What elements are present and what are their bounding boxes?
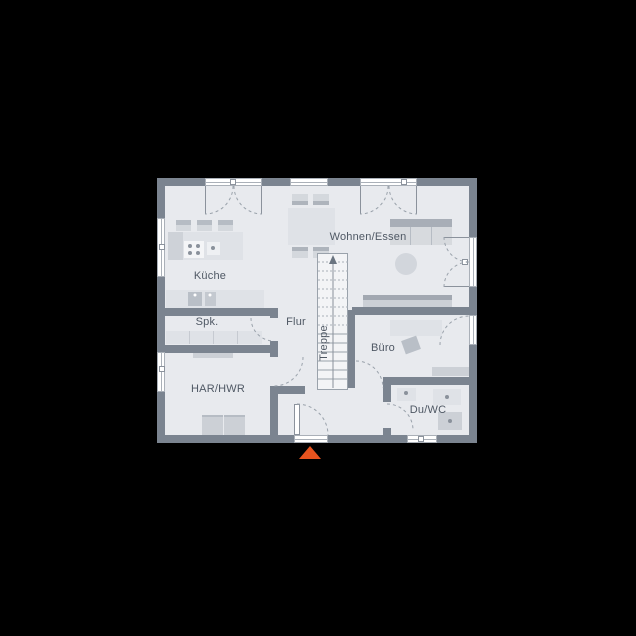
- room-label-du-wc: Du/WC: [398, 404, 458, 416]
- dryer: [224, 415, 245, 435]
- entry-door: [294, 435, 328, 443]
- window: [290, 178, 328, 186]
- utility-shelf: [193, 353, 233, 358]
- window-handle: [418, 436, 424, 442]
- entry-door-leaf: [294, 404, 300, 435]
- bar-stool: [197, 220, 212, 231]
- wall-segment: [383, 428, 391, 435]
- kitchen-sink: [207, 242, 220, 255]
- wall-segment: [383, 377, 469, 385]
- room-label-har-hwr: HAR/HWR: [168, 383, 268, 395]
- wall-segment: [383, 385, 391, 402]
- door-handle: [401, 179, 407, 185]
- office-shelf: [432, 367, 469, 376]
- room-label-treppe: Treppe: [318, 303, 330, 383]
- room-label-flur: Flur: [266, 316, 326, 328]
- window-handle: [159, 366, 165, 372]
- wall-segment: [165, 308, 278, 316]
- door-handle: [230, 179, 236, 185]
- dining-chair: [292, 247, 308, 258]
- terrace-door-living: [360, 178, 417, 186]
- washbasin: [433, 389, 461, 405]
- dining-chair: [313, 194, 329, 205]
- wall-segment: [352, 307, 469, 315]
- desk: [390, 320, 442, 336]
- entrance-arrow-marker: [299, 446, 321, 459]
- round-rug: [395, 253, 417, 275]
- cooktop: [184, 241, 204, 258]
- wall-segment: [165, 345, 278, 353]
- oven: [188, 292, 202, 306]
- bar-stool: [218, 220, 233, 231]
- room-label-buero: Büro: [353, 342, 413, 354]
- pantry-shelf: [166, 331, 262, 344]
- door-office: [469, 315, 477, 345]
- door-handle: [462, 259, 468, 265]
- washing-machine: [202, 415, 223, 435]
- wall-segment: [278, 386, 305, 394]
- toilet: [397, 388, 416, 401]
- bar-stool: [176, 220, 191, 231]
- wall-segment: [270, 386, 278, 435]
- kitchen-island: [168, 232, 243, 260]
- room-label-wohnen-essen: Wohnen/Essen: [318, 231, 418, 243]
- room-label-spk: Spk.: [177, 316, 237, 328]
- terrace-door-living-side: [469, 237, 477, 287]
- sideboard: [363, 295, 452, 307]
- floor-plan-canvas: Küche Wohnen/Essen Spk. Flur Treppe Büro…: [0, 0, 636, 636]
- window: [157, 352, 165, 392]
- dishwasher: [205, 292, 216, 306]
- dining-chair: [292, 194, 308, 205]
- window-handle: [159, 244, 165, 250]
- room-label-kueche: Küche: [180, 270, 240, 282]
